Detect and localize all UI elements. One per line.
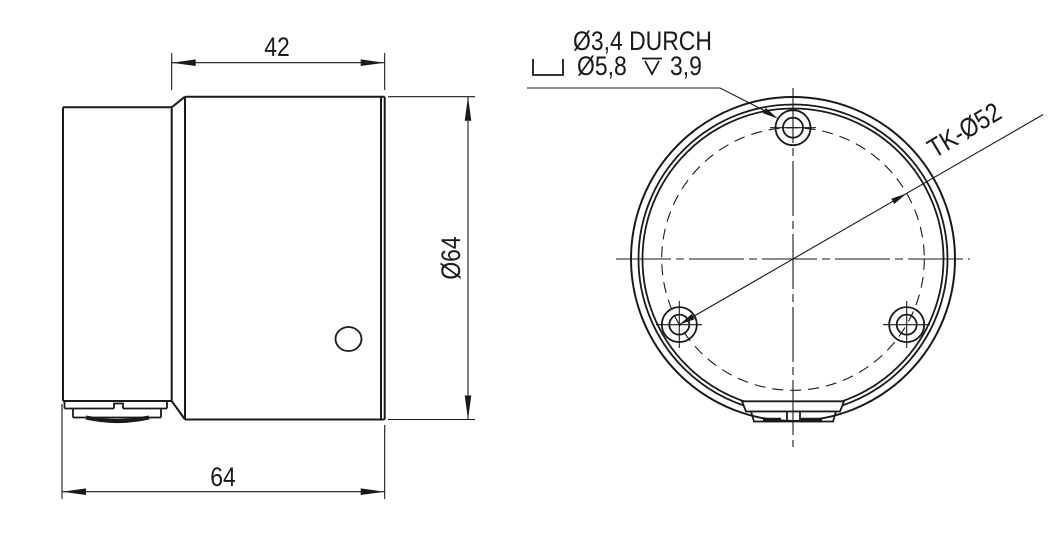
set-screw-hole bbox=[336, 327, 362, 351]
depth-icon bbox=[642, 59, 662, 75]
dim-42-arrow-right bbox=[361, 59, 385, 66]
tk52-arrow-upper bbox=[891, 193, 906, 204]
dim-42-label: 42 bbox=[264, 32, 290, 62]
dim-42-arrow-left bbox=[172, 59, 196, 66]
side-view: 42 Ø64 64 bbox=[62, 32, 475, 499]
dim-width-42: 42 bbox=[172, 32, 385, 90]
dim-64-label: 64 bbox=[210, 462, 236, 492]
dim-64-arrow-right bbox=[361, 488, 385, 495]
depth-value: 3,9 bbox=[670, 51, 702, 81]
side-view-bayonet bbox=[65, 401, 168, 421]
dim-64-arrow-left bbox=[62, 488, 86, 495]
counterbore-value: Ø5,8 bbox=[577, 51, 627, 81]
drawing-svg: 42 Ø64 64 bbox=[0, 0, 1050, 553]
side-view-body-outline bbox=[63, 97, 385, 420]
front-view: TK-Ø52 Ø3,4 DURCH Ø5,8 bbox=[527, 26, 1043, 447]
technical-drawing-canvas: 42 Ø64 64 bbox=[0, 0, 1050, 553]
dim-dia64-arrow-top bbox=[465, 97, 472, 121]
bolt-circle-dimension: TK-Ø52 bbox=[679, 97, 1043, 325]
dim-diameter-64: Ø64 bbox=[388, 97, 475, 420]
bayonet-steps bbox=[65, 401, 168, 421]
leader-line bbox=[527, 88, 764, 111]
dim-dia64-arrow-bottom bbox=[465, 396, 472, 420]
tk52-dim-line bbox=[679, 115, 1043, 325]
counterbore-icon bbox=[533, 59, 563, 75]
dim-dia64-label: Ø64 bbox=[436, 236, 466, 279]
tk52-label: TK-Ø52 bbox=[922, 97, 1006, 164]
